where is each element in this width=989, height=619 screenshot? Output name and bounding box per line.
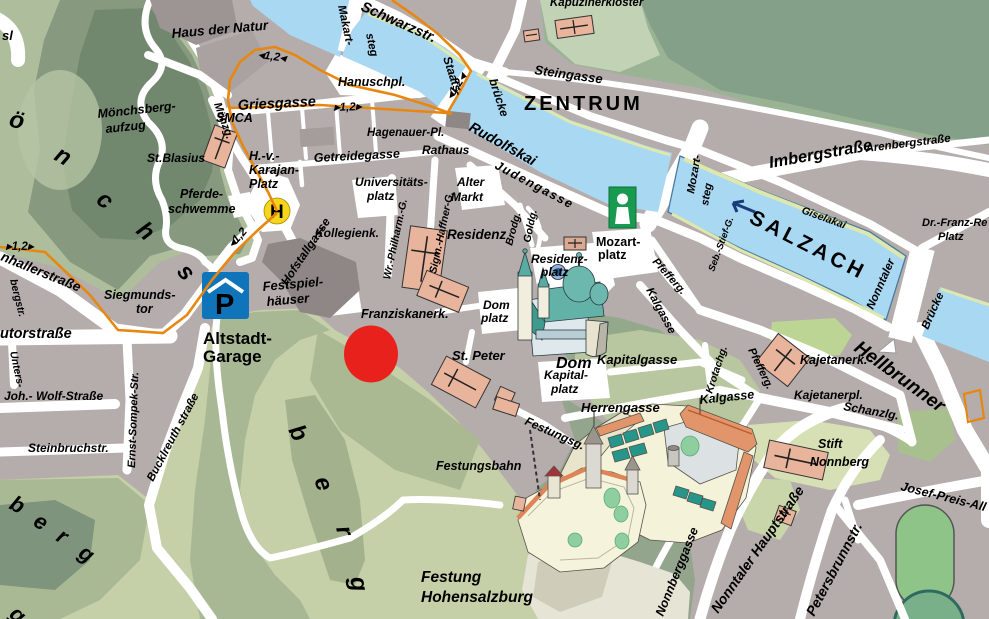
svg-text:Platz: Platz	[938, 231, 964, 243]
svg-text:Kollegienk.: Kollegienk.	[315, 226, 379, 240]
svg-text:sl: sl	[2, 28, 13, 43]
svg-text:platz: platz	[480, 311, 508, 325]
svg-text:Hohensalzburg: Hohensalzburg	[421, 589, 533, 606]
svg-text:Kajetanerk.: Kajetanerk.	[800, 353, 867, 367]
svg-text:Alter: Alter	[456, 175, 486, 189]
svg-text:Mozart-: Mozart-	[596, 235, 640, 249]
svg-text:platz: platz	[540, 265, 568, 279]
svg-text:Festung: Festung	[421, 569, 482, 586]
svg-text:Joh.- Wolf-Straße: Joh.- Wolf-Straße	[4, 389, 103, 403]
svg-text:Dom: Dom	[483, 298, 510, 312]
svg-text:Kapitalgasse: Kapitalgasse	[597, 352, 677, 367]
svg-text:platz: platz	[598, 248, 626, 262]
svg-text:St. Peter: St. Peter	[452, 348, 506, 363]
svg-text:▸1,2▸: ▸1,2▸	[333, 101, 363, 114]
svg-text:platz: platz	[550, 382, 578, 396]
svg-text:Residenz: Residenz	[447, 227, 507, 242]
svg-text:ZENTRUM: ZENTRUM	[524, 93, 643, 115]
svg-text:Nonnberg: Nonnberg	[810, 455, 869, 469]
svg-text:H.-v.-: H.-v.-	[249, 149, 280, 163]
svg-text:Kapuzinerkloster: Kapuzinerkloster	[550, 0, 644, 9]
svg-text:Residenz-: Residenz-	[531, 252, 588, 266]
svg-text:Altstadt-: Altstadt-	[203, 329, 272, 348]
svg-text:utorstraße: utorstraße	[0, 326, 72, 342]
svg-text:tor: tor	[136, 302, 154, 316]
svg-text:St.Blasius: St.Blasius	[147, 151, 205, 165]
svg-text:Rathaus: Rathaus	[422, 143, 470, 157]
svg-text:Pferde-: Pferde-	[180, 187, 223, 201]
svg-text:Platz: Platz	[249, 177, 279, 191]
svg-text:H: H	[270, 202, 284, 223]
svg-text:Hagenauer-Pl.: Hagenauer-Pl.	[367, 127, 444, 139]
svg-text:Dom: Dom	[556, 355, 592, 372]
svg-text:▸1,2▸: ▸1,2▸	[5, 241, 35, 253]
svg-text:Stift: Stift	[818, 437, 843, 451]
svg-text:Festungsbahn: Festungsbahn	[436, 459, 522, 473]
svg-text:platz: platz	[366, 189, 394, 203]
svg-text:Herrengasse: Herrengasse	[581, 400, 660, 415]
svg-text:Universitäts-: Universitäts-	[355, 175, 428, 189]
svg-text:Markt: Markt	[451, 190, 484, 204]
svg-text:Franziskanerk.: Franziskanerk.	[361, 307, 449, 321]
svg-text:Siegmunds-: Siegmunds-	[104, 288, 176, 302]
svg-text:P: P	[215, 289, 234, 321]
svg-text:Dr.-Franz-Re: Dr.-Franz-Re	[922, 217, 987, 229]
svg-text:Karajan-: Karajan-	[249, 163, 299, 177]
svg-text:Hanuschpl.: Hanuschpl.	[338, 75, 405, 89]
svg-text:Garage: Garage	[203, 347, 262, 366]
svg-text:Steinbruchstr.: Steinbruchstr.	[28, 441, 109, 455]
svg-text:schwemme: schwemme	[168, 202, 235, 216]
